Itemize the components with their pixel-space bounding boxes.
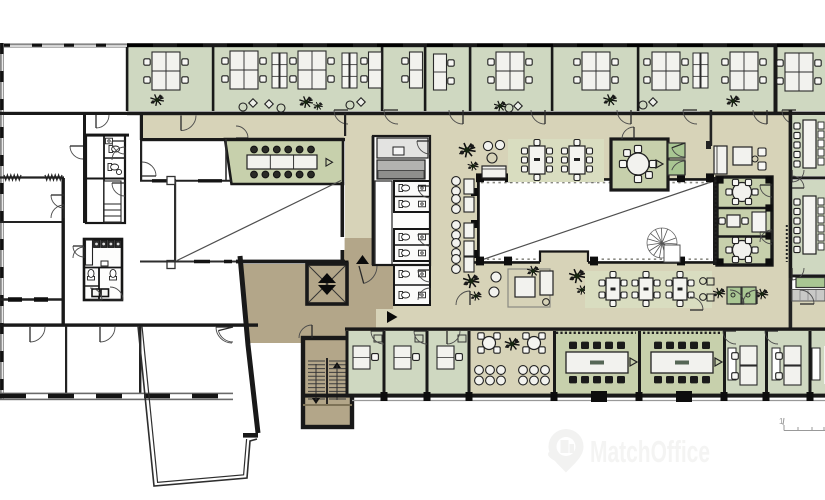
svg-text:MatchOffice: MatchOffice — [590, 434, 710, 469]
svg-text:1: 1 — [779, 417, 784, 426]
